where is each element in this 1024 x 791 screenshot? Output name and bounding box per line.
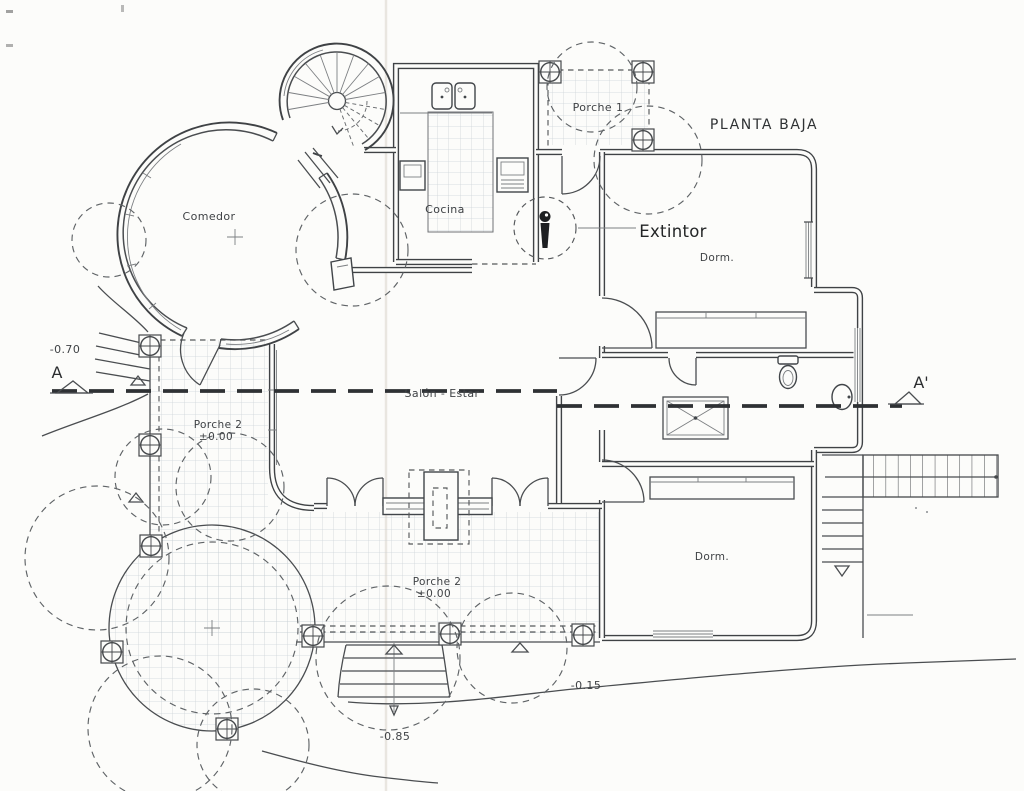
drawing-title: PLANTA BAJA xyxy=(710,117,818,133)
column-icon xyxy=(302,625,324,647)
double-sink-icon xyxy=(432,83,475,109)
column-icon xyxy=(572,624,594,646)
tiled-floors xyxy=(109,71,648,731)
level-jardin: -0.15 xyxy=(571,679,601,692)
porch-arrow-west-1 xyxy=(131,376,145,385)
section-arrow-icon xyxy=(895,392,921,404)
level-escalera: -0.85 xyxy=(380,730,410,743)
closet-dorm-sur xyxy=(650,477,794,499)
entry-door-swing xyxy=(562,156,600,194)
section-marker-a: A xyxy=(52,363,63,382)
section-marker-a-prime: A' xyxy=(913,373,928,392)
column-icon xyxy=(139,434,161,456)
appliance-icon xyxy=(400,161,425,190)
floorplan-sheet: PLANTA BAJA Extintor Comedor Cocina Porc… xyxy=(0,0,1024,791)
level-porche2-south: ±0.00 xyxy=(417,588,451,600)
room-label-cocina: Cocina xyxy=(425,203,465,216)
column-icon xyxy=(140,535,162,557)
room-label-porche2-west: Porche 2 xyxy=(194,419,243,431)
porch-arrow-south xyxy=(512,643,528,652)
floor-plan-canvas: PLANTA BAJA Extintor Comedor Cocina Porc… xyxy=(0,0,1024,791)
spiral-staircase-icon xyxy=(280,44,394,188)
level-acceso: -0.70 xyxy=(50,343,80,356)
room-label-dorm-norte: Dorm. xyxy=(700,252,734,264)
room-label-salon: Salón - Estar xyxy=(405,387,480,400)
column-icon xyxy=(632,129,654,151)
tree-canopy-icon xyxy=(72,203,146,277)
cooker-icon xyxy=(497,158,528,192)
shower-tray-icon xyxy=(663,397,728,439)
room-label-porche2-south: Porche 2 xyxy=(413,576,462,588)
doors xyxy=(327,156,696,506)
extinguisher-label: Extintor xyxy=(639,222,706,241)
column-icon xyxy=(539,61,561,83)
stair-direction-arrow xyxy=(835,566,849,576)
level-porche2-west: ±0.00 xyxy=(199,431,233,443)
east-stairs-treads xyxy=(822,497,863,562)
column-icon xyxy=(139,335,161,357)
room-label-porche1: Porche 1 xyxy=(573,101,624,114)
column-icon xyxy=(101,641,123,663)
column-icon xyxy=(632,61,654,83)
tree-canopy-icon xyxy=(296,194,408,306)
comedor-center-mark xyxy=(227,229,243,245)
room-label-dorm-sur: Dorm. xyxy=(695,551,729,563)
column-icon xyxy=(216,718,238,740)
closet-dorm-norte xyxy=(656,312,806,348)
pergola-grid xyxy=(863,455,998,497)
room-label-comedor: Comedor xyxy=(183,210,236,223)
extinguisher-icon xyxy=(514,197,636,259)
toilet-icon xyxy=(778,356,798,389)
pergola-and-east-stairs xyxy=(822,455,998,638)
